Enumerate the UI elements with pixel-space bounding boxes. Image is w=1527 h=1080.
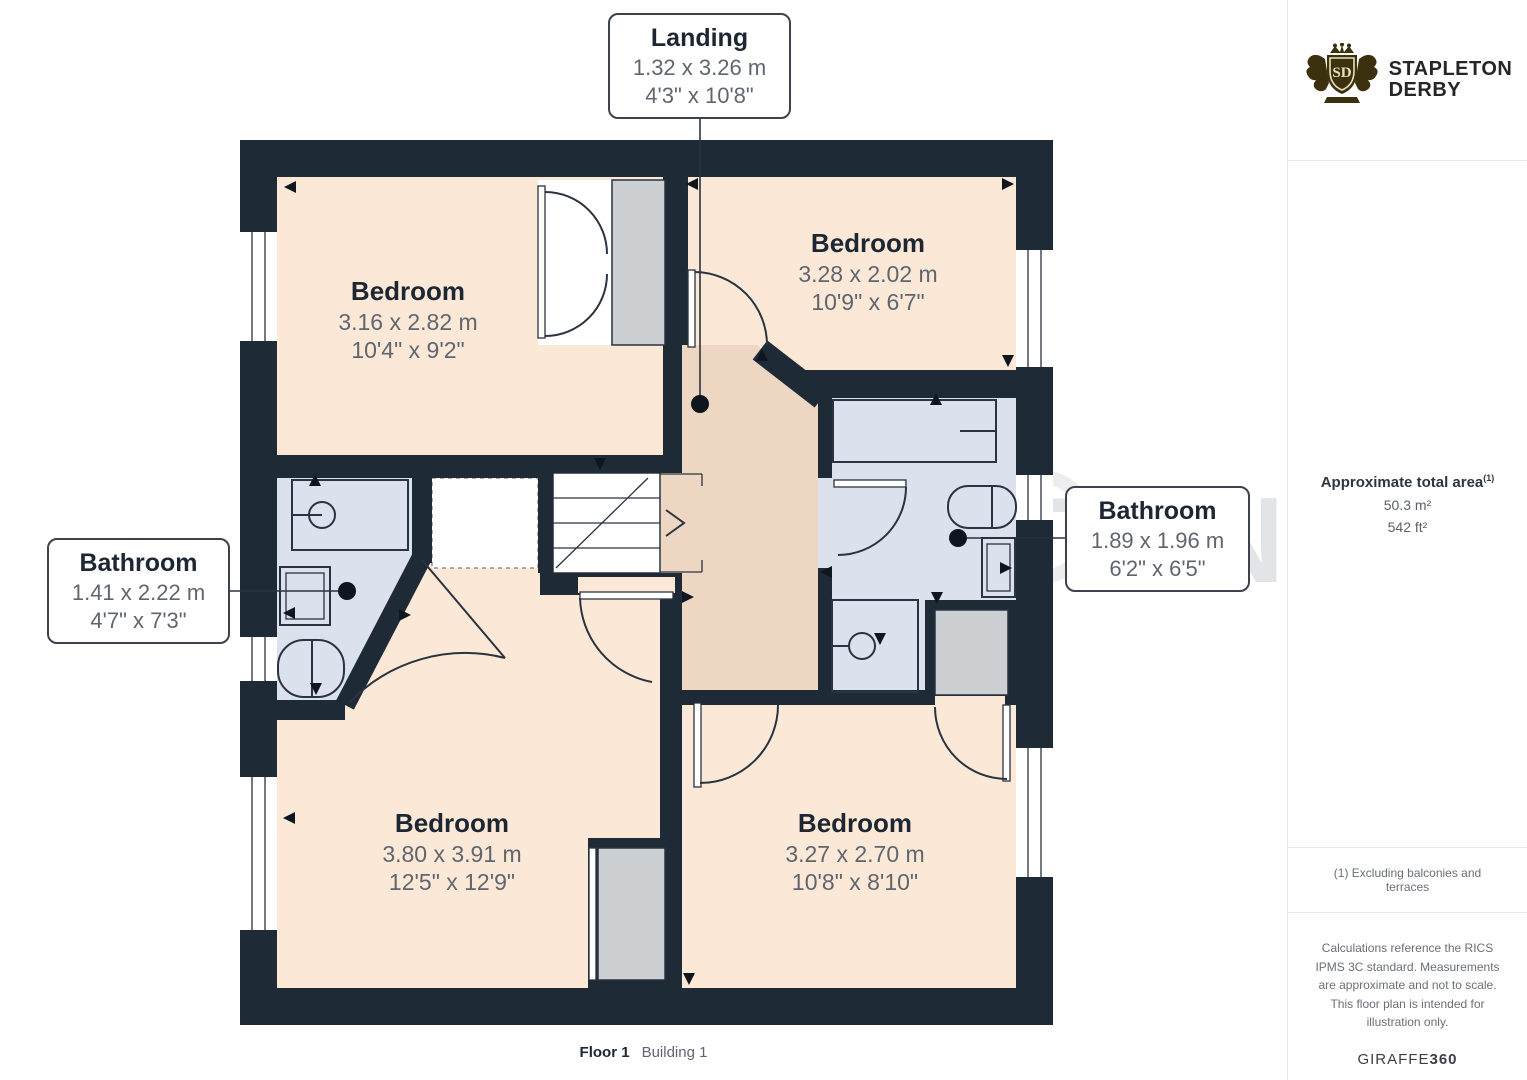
bedroom-top-right-floor: [688, 177, 1016, 370]
wardrobe-top-left: [612, 180, 665, 345]
total-area-m2: 50.3 m²: [1384, 497, 1431, 513]
callout-dims-imperial: 4'3" x 10'8": [616, 82, 783, 110]
footnote-marker: (1): [1483, 473, 1494, 483]
landing-floor: [660, 345, 818, 690]
floor-plan-area: STAPLETON DERBY SD: [0, 0, 1287, 1080]
floor-label: Floor 1: [580, 1044, 630, 1061]
agency-crest-icon: SD: [1303, 43, 1381, 117]
disclaimer-section: Calculations reference the RICS IPMS 3C …: [1288, 912, 1527, 1080]
agency-logo: SD STAPLETON DERBY: [1288, 0, 1527, 161]
agency-name: STAPLETON DERBY: [1389, 59, 1513, 101]
info-sidebar: SD STAPLETON DERBY Approximate total are…: [1287, 0, 1527, 1080]
bedroom-bottom-right-floor: [682, 705, 1016, 988]
callout-title: Bathroom: [1073, 496, 1242, 527]
svg-text:SD: SD: [1332, 65, 1351, 81]
callout-dims-metric: 1.32 x 3.26 m: [616, 54, 783, 82]
agency-name-line1: STAPLETON: [1389, 59, 1513, 80]
callout-dims-imperial: 6'2" x 6'5": [1073, 555, 1242, 583]
giraffe360-credit: GIRAFFE360: [1314, 1048, 1501, 1071]
total-area-ft2: 542 ft²: [1388, 519, 1428, 535]
total-area-section: Approximate total area(1) 50.3 m² 542 ft…: [1288, 161, 1527, 847]
agency-name-line2: DERBY: [1389, 80, 1513, 101]
floorplan-page: STAPLETON DERBY SD: [0, 0, 1527, 1080]
building-label: Building 1: [642, 1044, 708, 1061]
total-area-title: Approximate total area(1): [1321, 473, 1495, 491]
callout-title: Bathroom: [55, 548, 222, 579]
disclaimer-text: Calculations reference the RICS IPMS 3C …: [1314, 939, 1501, 1032]
area-footnote: (1) Excluding balconies and terraces: [1288, 847, 1527, 912]
callout-landing: Landing 1.32 x 3.26 m 4'3" x 10'8": [608, 13, 791, 119]
callout-bathroom-right: Bathroom 1.89 x 1.96 m 6'2" x 6'5": [1065, 486, 1250, 592]
plan-caption: Floor 1Building 1: [0, 1044, 1287, 1061]
callout-dims-imperial: 4'7" x 7'3": [55, 607, 222, 635]
callout-dims-metric: 1.41 x 2.22 m: [55, 579, 222, 607]
void-skylight: [432, 478, 538, 568]
wardrobe-bottom: [598, 848, 665, 980]
callout-bathroom-left: Bathroom 1.41 x 2.22 m 4'7" x 7'3": [47, 538, 230, 644]
callout-dims-metric: 1.89 x 1.96 m: [1073, 527, 1242, 555]
callout-title: Landing: [616, 23, 783, 54]
wardrobe-bathroom: [935, 610, 1008, 695]
